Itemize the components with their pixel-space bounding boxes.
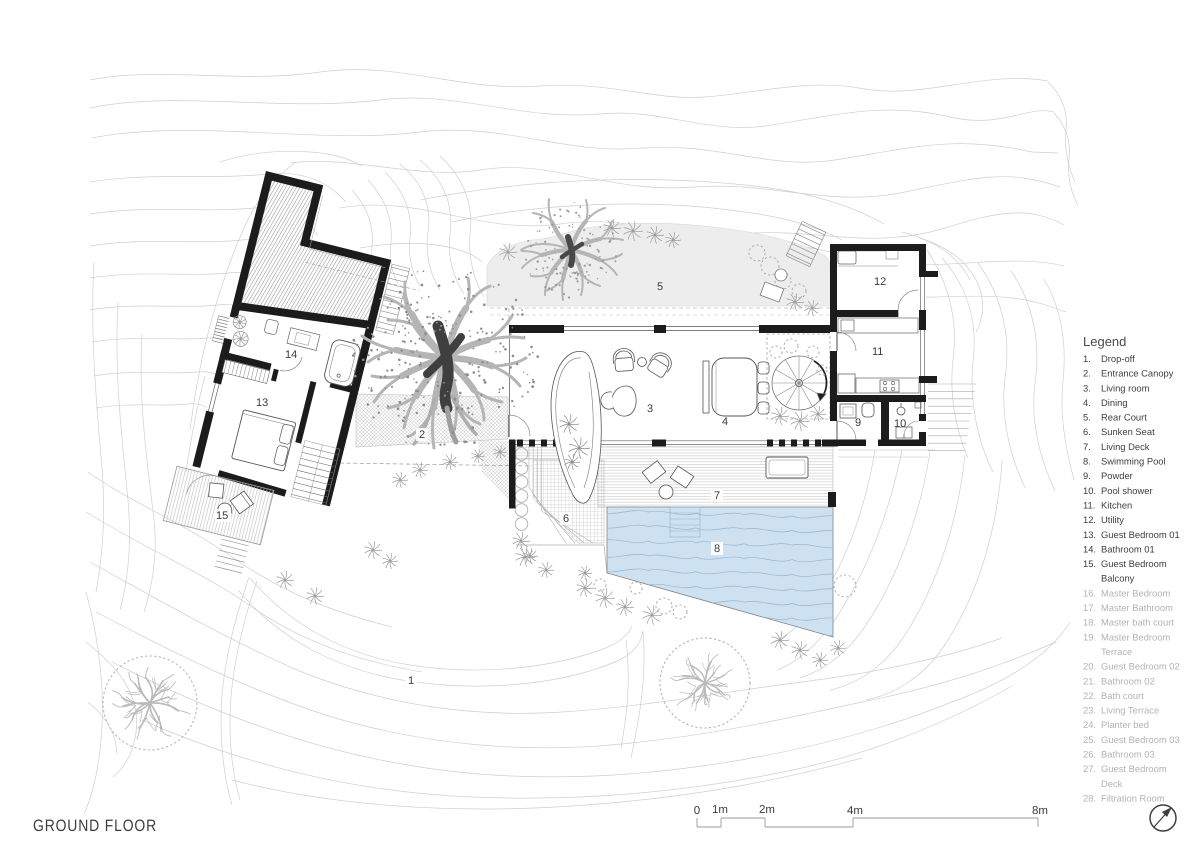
svg-text:Guest Bedroom 03: Guest Bedroom 03 (1101, 734, 1180, 745)
svg-text:Terrace: Terrace (1101, 646, 1132, 657)
svg-text:21.: 21. (1083, 675, 1096, 686)
svg-text:15.: 15. (1083, 558, 1096, 569)
svg-text:Master bath court: Master bath court (1101, 617, 1174, 628)
svg-text:2.: 2. (1083, 368, 1091, 379)
svg-text:10: 10 (894, 418, 906, 430)
svg-text:27.: 27. (1083, 763, 1096, 774)
svg-text:Guest Bedroom 02: Guest Bedroom 02 (1101, 661, 1180, 672)
svg-text:Planter bed: Planter bed (1101, 719, 1149, 730)
svg-text:23.: 23. (1083, 705, 1096, 716)
svg-text:Master Bedroom: Master Bedroom (1101, 587, 1170, 598)
svg-text:7.: 7. (1083, 441, 1091, 452)
svg-text:Bathroom 02: Bathroom 02 (1101, 675, 1155, 686)
svg-text:4m: 4m (847, 805, 863, 817)
svg-text:5: 5 (657, 281, 663, 293)
svg-text:11.: 11. (1083, 500, 1095, 511)
svg-text:14: 14 (285, 349, 297, 361)
svg-text:12: 12 (874, 276, 886, 288)
svg-text:Guest Bedroom: Guest Bedroom (1101, 558, 1167, 569)
svg-text:Pool shower: Pool shower (1101, 485, 1153, 496)
svg-text:8.: 8. (1083, 456, 1091, 467)
svg-text:6: 6 (563, 513, 569, 525)
svg-text:15: 15 (216, 510, 228, 522)
svg-text:Sunken Seat: Sunken Seat (1101, 426, 1155, 437)
svg-text:Living Deck: Living Deck (1101, 441, 1150, 452)
svg-text:11: 11 (872, 346, 883, 358)
svg-text:9.: 9. (1083, 470, 1091, 481)
svg-text:22.: 22. (1083, 690, 1096, 701)
svg-text:8: 8 (714, 543, 720, 555)
svg-text:10.: 10. (1083, 485, 1096, 496)
svg-text:Dining: Dining (1101, 397, 1128, 408)
svg-text:Entrance Canopy: Entrance Canopy (1101, 368, 1174, 379)
svg-text:19.: 19. (1083, 631, 1096, 642)
svg-text:Master Bathroom: Master Bathroom (1101, 602, 1173, 613)
svg-text:2: 2 (419, 429, 425, 441)
svg-text:Bath court: Bath court (1101, 690, 1144, 701)
svg-text:13: 13 (256, 397, 268, 409)
svg-text:Rear Court: Rear Court (1101, 412, 1147, 423)
svg-text:17.: 17. (1083, 602, 1096, 613)
svg-text:1: 1 (408, 675, 414, 687)
svg-text:Kitchen: Kitchen (1101, 500, 1132, 511)
svg-text:9: 9 (855, 417, 861, 429)
svg-text:Powder: Powder (1101, 470, 1133, 481)
svg-text:Guest Bedroom: Guest Bedroom (1101, 763, 1167, 774)
svg-text:1.: 1. (1083, 353, 1091, 364)
svg-text:Deck: Deck (1101, 778, 1123, 789)
svg-text:Master Bedroom: Master Bedroom (1101, 631, 1170, 642)
svg-text:Bathroom 03: Bathroom 03 (1101, 749, 1155, 760)
svg-text:Living room: Living room (1101, 382, 1150, 393)
svg-text:6.: 6. (1083, 426, 1091, 437)
svg-text:Living Terrace: Living Terrace (1101, 705, 1159, 716)
svg-text:Legend: Legend (1083, 334, 1126, 349)
svg-text:26.: 26. (1083, 749, 1096, 760)
svg-text:Balcony: Balcony (1101, 573, 1135, 584)
svg-text:Utility: Utility (1101, 514, 1124, 525)
svg-text:12.: 12. (1083, 514, 1096, 525)
svg-text:Swimming Pool: Swimming Pool (1101, 456, 1166, 467)
svg-text:Bathroom 01: Bathroom 01 (1101, 543, 1155, 554)
svg-text:Filtration Room: Filtration Room (1101, 793, 1165, 804)
svg-text:4: 4 (722, 416, 728, 428)
svg-text:18.: 18. (1083, 617, 1096, 628)
svg-text:13.: 13. (1083, 529, 1096, 540)
svg-text:0: 0 (694, 805, 700, 817)
svg-text:25.: 25. (1083, 734, 1096, 745)
svg-text:7: 7 (714, 490, 720, 502)
svg-text:24.: 24. (1083, 719, 1096, 730)
svg-text:3: 3 (647, 403, 653, 415)
svg-text:8m: 8m (1032, 805, 1048, 817)
svg-text:1m: 1m (712, 804, 728, 816)
svg-text:4.: 4. (1083, 397, 1091, 408)
svg-text:28.: 28. (1083, 793, 1096, 804)
svg-text:20.: 20. (1083, 661, 1096, 672)
svg-text:16.: 16. (1083, 587, 1096, 598)
svg-text:Drop-off: Drop-off (1101, 353, 1135, 364)
svg-text:2m: 2m (759, 804, 775, 816)
svg-text:GROUND FLOOR: GROUND FLOOR (33, 817, 157, 835)
svg-text:Guest Bedroom 01: Guest Bedroom 01 (1101, 529, 1180, 540)
svg-text:3.: 3. (1083, 382, 1091, 393)
svg-text:5.: 5. (1083, 412, 1091, 423)
svg-text:14.: 14. (1083, 543, 1096, 554)
